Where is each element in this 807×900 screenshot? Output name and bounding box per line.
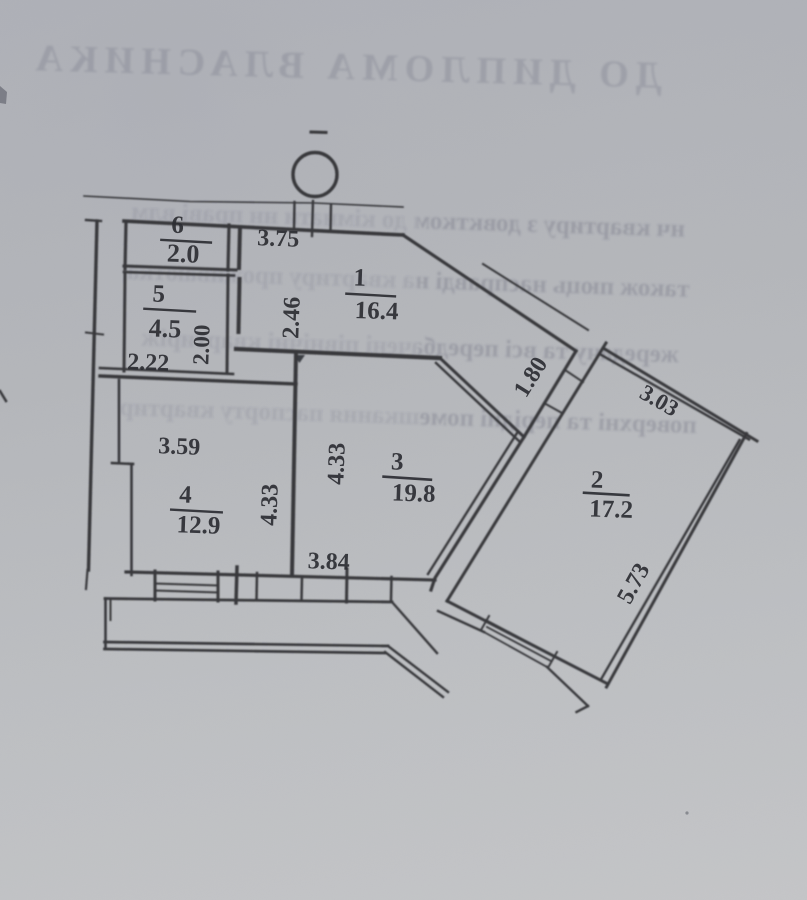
- svg-text:2.0: 2.0: [166, 239, 199, 269]
- svg-text:16.4: 16.4: [354, 297, 399, 326]
- svg-text:3.59: 3.59: [158, 433, 201, 460]
- svg-text:12.9: 12.9: [176, 511, 221, 540]
- svg-text:3.75: 3.75: [257, 225, 300, 252]
- svg-text:2.00: 2.00: [188, 324, 214, 365]
- svg-text:3: 3: [391, 448, 404, 475]
- svg-text:4: 4: [179, 481, 193, 508]
- svg-text:3.84: 3.84: [307, 548, 350, 575]
- svg-text:6: 6: [171, 212, 184, 239]
- svg-text:4.33: 4.33: [256, 483, 283, 526]
- svg-text:5: 5: [152, 281, 165, 308]
- svg-text:1: 1: [353, 264, 366, 291]
- svg-text:2.46: 2.46: [278, 296, 305, 339]
- svg-text:4.5: 4.5: [148, 313, 181, 343]
- svg-text:19.8: 19.8: [391, 479, 436, 508]
- svg-text:2: 2: [590, 466, 603, 493]
- svg-text:4.33: 4.33: [323, 442, 350, 485]
- svg-text:17.2: 17.2: [589, 495, 634, 524]
- svg-text:2.22: 2.22: [127, 349, 170, 376]
